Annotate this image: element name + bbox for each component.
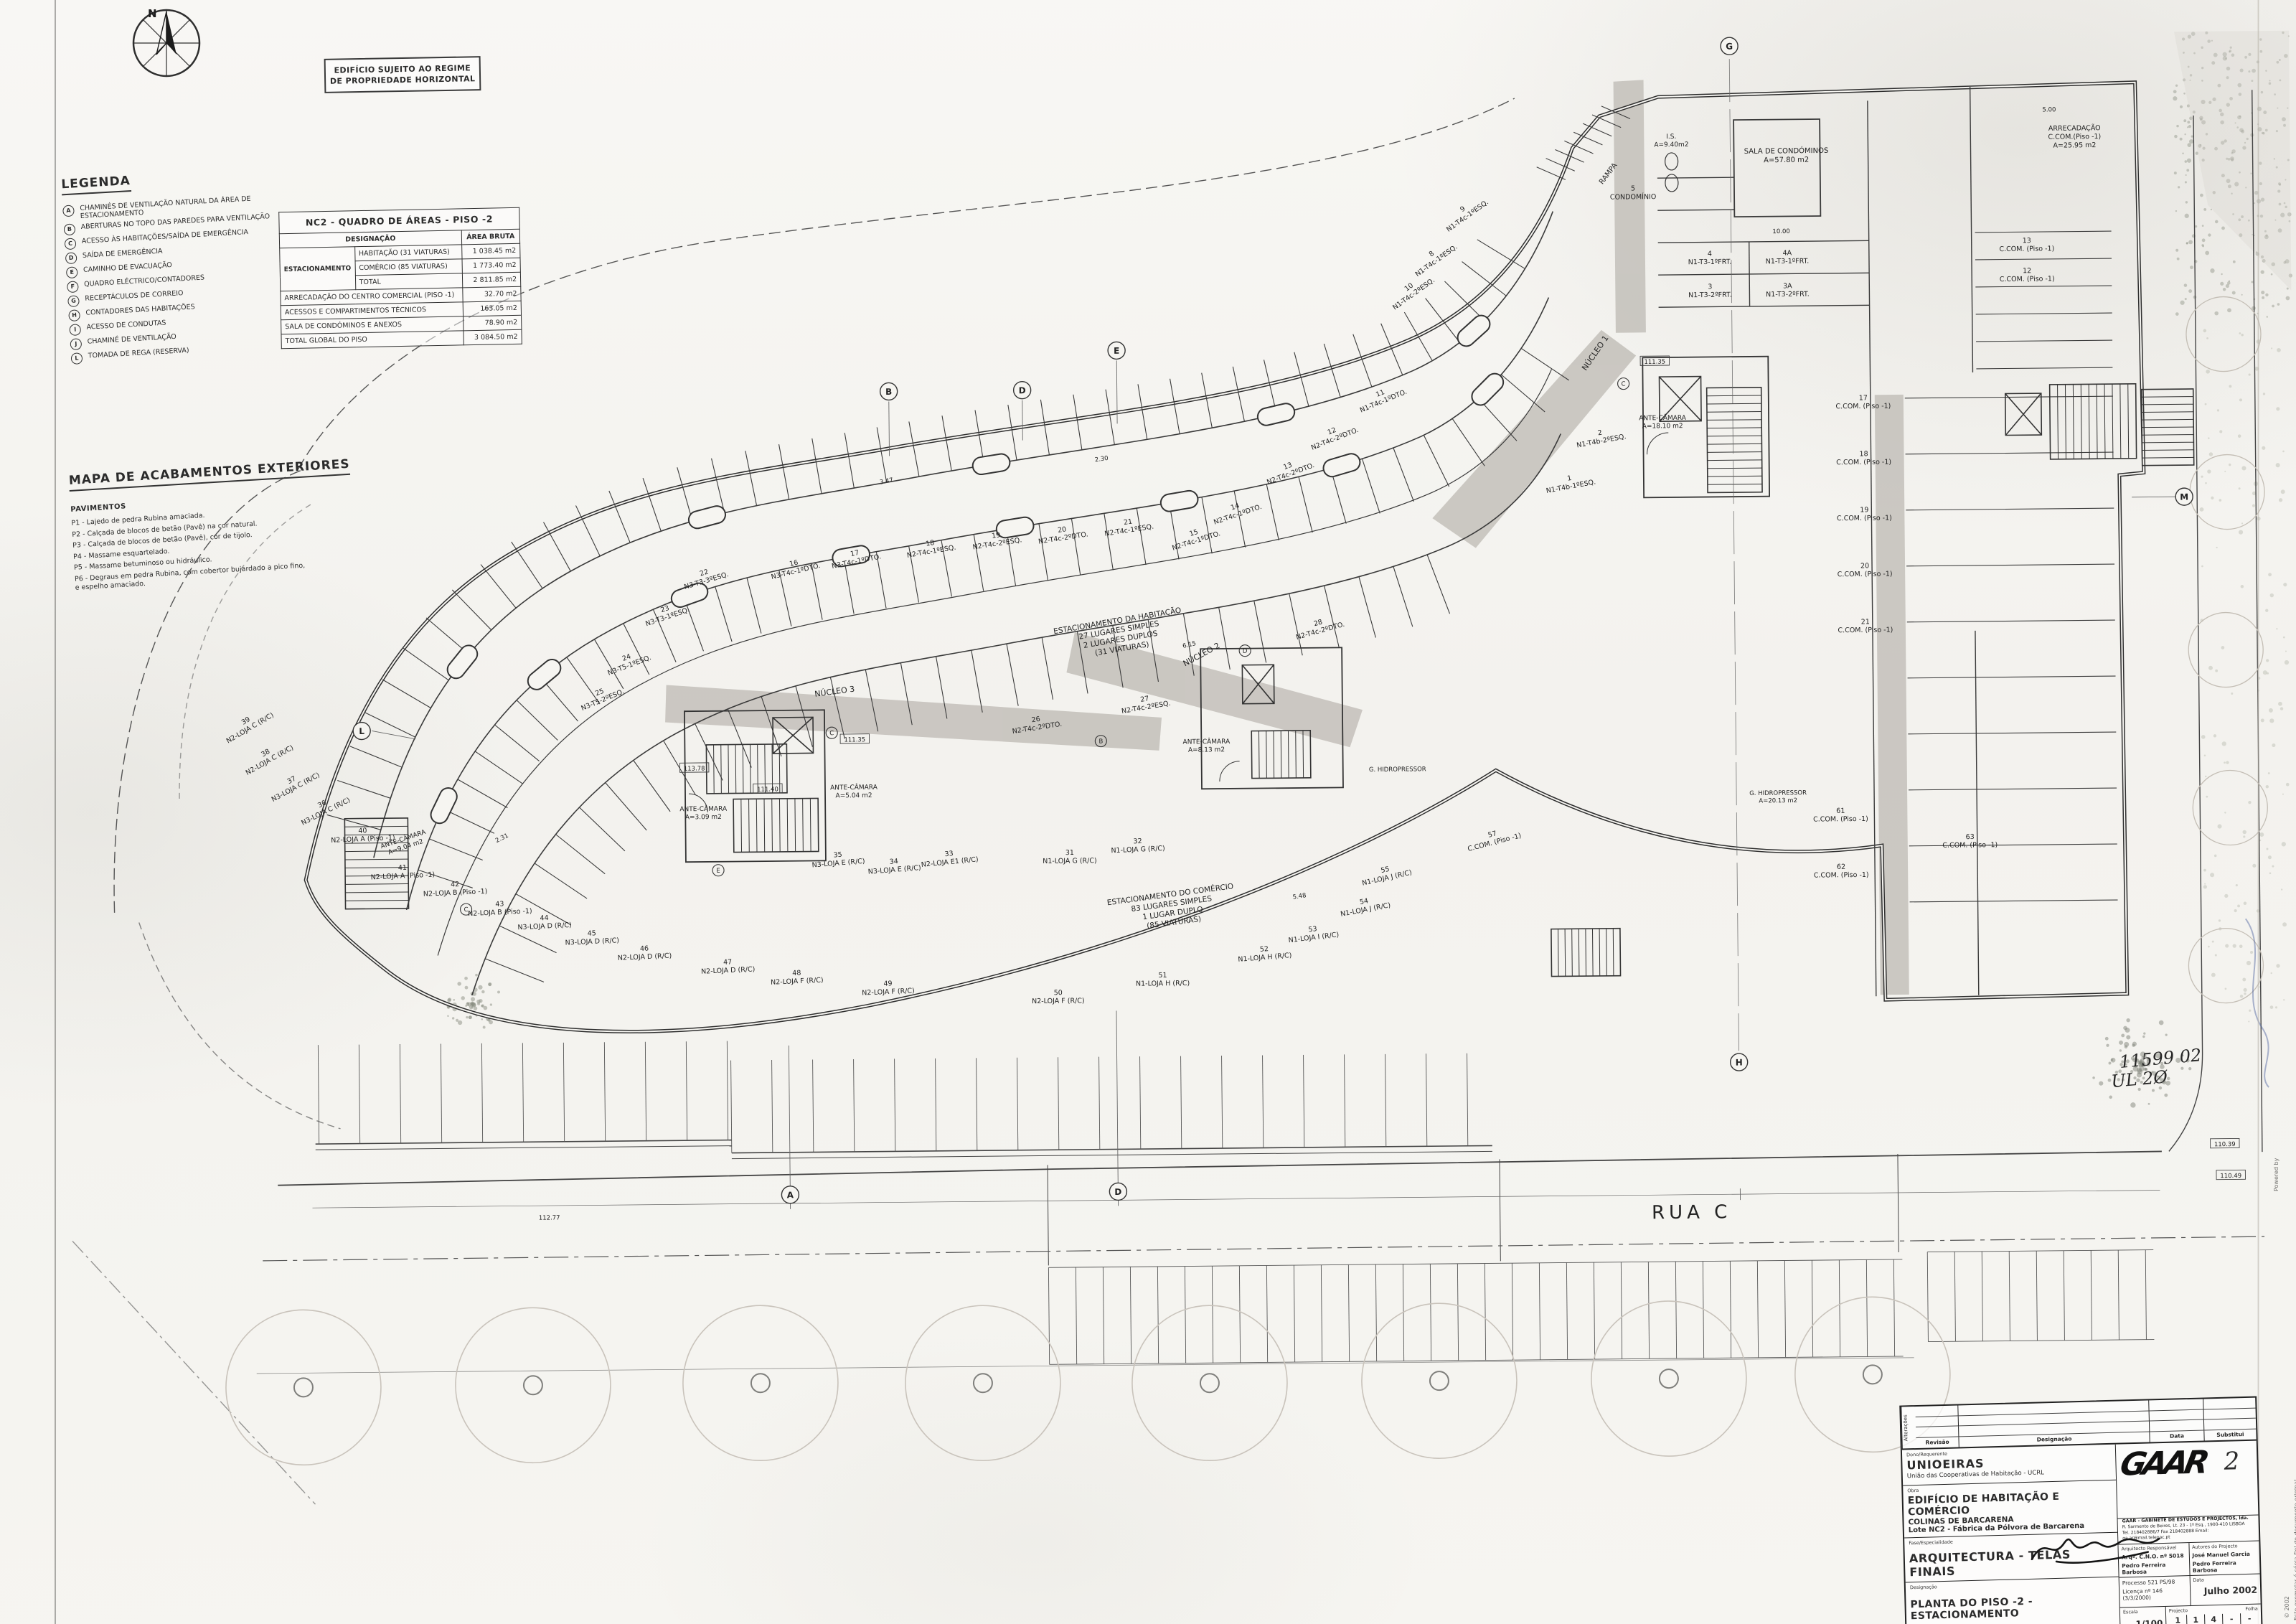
processo-line1: Processo 521 PS/98 [2122, 1578, 2187, 1586]
legend-key-icon: F [67, 281, 79, 293]
designacao-cell: Designação PLANTA DO PISO -2 - ESTACIONA… [1906, 1577, 2119, 1624]
projecto-label: Projecto [2169, 1607, 2188, 1614]
autores-line2: Pedro Ferreira Barbosa [2193, 1559, 2257, 1574]
stall-label: 40N2-LOJA A (Piso -1) [330, 826, 395, 845]
stall-label: 39N2-LOJA C (R/C) [221, 704, 276, 745]
areas-table-cell: 1 038.45 m2 [461, 243, 520, 259]
stall-label: 14N2-T4c-1ºDTO. [1210, 495, 1263, 527]
sheet-crease [2257, 0, 2259, 1624]
dimension-label: 111.35 [844, 736, 865, 743]
grid-mark-G: G [1726, 42, 1733, 52]
grid-mark-B: B [885, 387, 892, 397]
regime-note-box: EDIFÍCIO SUJEITO AO REGIME DE PROPRIEDAD… [324, 56, 481, 93]
drawing-sheet: SALA DE CONDÓMINOSA=57.80 m25CONDOMÍNIOA… [0, 0, 2296, 1624]
legend-key-icon: H [68, 309, 80, 321]
plan-annotation: I.S.A=9.40m2 [1654, 133, 1688, 149]
legend-key-icon: D [65, 252, 77, 264]
legend-key-icon: L [71, 352, 83, 365]
stall-label: 52N1-LOJA H (R/C) [1237, 943, 1292, 963]
data-cell: Data Julho 2002 [2190, 1574, 2261, 1607]
revision-side-label: Alterações [1901, 1407, 1916, 1449]
stall-label: 9N1-T4c-1ºESQ. [1440, 192, 1490, 234]
legend-item-label: CAMINHO DE EVACUAÇÃO [83, 261, 172, 274]
legend-item-label: RECEPTÁCULOS DE CORREIO [85, 289, 184, 303]
dimension-label: 3.47 [879, 477, 893, 486]
stall-label: 46N2-LOJA D (R/C) [617, 944, 672, 962]
title-block: Alterações Revisão Designação Data Subst… [1899, 1397, 2263, 1624]
grid-mark-H: H [1736, 1058, 1743, 1068]
path-mark-C: C [1622, 381, 1626, 388]
plan-annotation: ANTE-CÂMARAA=18.10 m2 [1639, 413, 1687, 431]
compass-north-label: N [148, 7, 157, 20]
plan-annotation: ANTE-CÂMARAA=8.13 m2 [1182, 737, 1231, 754]
stall-label: 4AN1-T3-1ºFRT. [1766, 249, 1810, 266]
grid-mark-D: D [1114, 1187, 1121, 1197]
stall-label: 3AN1-T3-2ºFRT. [1766, 282, 1810, 299]
dimension-label: 112.77 [539, 1214, 560, 1221]
legend-items: ACHAMINÉS DE VENTILAÇÃO NATURAL DA ÁREA … [62, 192, 308, 365]
corridor-bands [659, 78, 1909, 1007]
plan-annotation: ESTACIONAMENTO DO COMÉRCIO83 LUGARES SIM… [1106, 881, 1238, 935]
sheet-fold-line [55, 0, 56, 1624]
revision-col-substitui: Substitui [2204, 1429, 2256, 1440]
autores-label: Autores do Projecto [2192, 1543, 2257, 1550]
stall-label: 2N1-T4b-2ºESQ. [1574, 425, 1627, 450]
dimension-label: 2.30 [1094, 455, 1109, 464]
north-arrow: N [123, 1, 210, 88]
data-value: Julho 2002 [2193, 1585, 2257, 1597]
legend-key-icon: I [69, 324, 81, 336]
stall-label: 43N2-LOJA B (Piso -1) [467, 899, 532, 918]
column-capsules [423, 311, 1511, 826]
stall-label: 33N2-LOJA E1 (R/C) [920, 848, 979, 869]
copy-note-stamp: Este exemplar é cópia fiel do documento … [2293, 1480, 2296, 1620]
wing-walls [1657, 87, 1979, 998]
grid-mark-L: L [359, 726, 364, 736]
stall-label: 45N3-LOJA D (R/C) [565, 929, 619, 947]
autores-line1: José Manuel Garcia [2192, 1551, 2257, 1559]
logo-cell: GAAR 2 [2116, 1441, 2259, 1519]
stall-label: 37N3-LOJA C (R/C) [266, 764, 321, 804]
stall-label: 54N1-LOJA J (R/C) [1338, 893, 1391, 919]
stall-label: 53N1-LOJA I (R/C) [1287, 923, 1340, 944]
stall-label: 61C.COM. (Piso -1) [1813, 807, 1868, 823]
projecto-folha-cells: 114-- [2169, 1613, 2258, 1624]
fase-value: ARQUITECTURA - TELAS FINAIS [1909, 1546, 2114, 1579]
escala-cell: Escala 1/100 [2120, 1607, 2167, 1624]
stair-cores [339, 148, 2199, 988]
regime-note-line2: DE PROPRIEDADE HORIZONTAL [329, 73, 476, 87]
plan-annotation: G. HIDROPRESSOR [1369, 766, 1426, 774]
fase-cell: Fase/Especialidade ARQUITECTURA - TELAS … [1904, 1533, 2119, 1583]
road-lines [245, 90, 2264, 1374]
dimension-label: 111.40 [757, 786, 778, 793]
path-mark-B: B [1098, 738, 1103, 746]
stall-label: 44N3-LOJA D (R/C) [517, 913, 572, 931]
stall-label: 1N1-T4b-1ºESQ. [1544, 470, 1596, 495]
resp-line2: Pedro Ferreira Barbosa [2122, 1561, 2186, 1575]
wing-stall-lines [1904, 231, 2118, 902]
stall-label: 12N2-T4c-2ºDTO. [1307, 418, 1360, 452]
path-mark-C: C [829, 730, 834, 737]
legend-key-icon: J [70, 338, 82, 350]
areas-table-cell: 163.05 m2 [463, 301, 522, 316]
processo-line2: Licença nº 146 (3/3/2000) [2122, 1587, 2187, 1601]
stall-label: 42N2-LOJA B (Piso -1) [423, 879, 487, 898]
revision-col-revisao: Revisão [1916, 1437, 1959, 1448]
stall-label: 55N1-LOJA J (R/C) [1360, 860, 1413, 887]
stall-label: 10N1-T4c-2ºESQ. [1386, 270, 1436, 312]
dimension-label: 110.49 [2220, 1173, 2241, 1180]
stall-label: 50N2-LOJA F (R/C) [1032, 989, 1085, 1005]
stall-label: 57C.COM. (Piso -1) [1464, 824, 1522, 853]
gaar-logo: GAAR [2117, 1446, 2208, 1481]
legend-item-label: SAÍDA DE EMERGÊNCIA [83, 248, 163, 260]
stall-label: 38N2-LOJA C (R/C) [240, 736, 295, 776]
legend-key-icon: A [62, 205, 75, 217]
finishes-block: MAPA DE ACABAMENTOS EXTERIORES PAVIMENTO… [68, 456, 362, 595]
areas-table-cell: TOTAL GLOBAL DO PISO [281, 331, 464, 349]
stall-label: 48N2-LOJA F (R/C) [770, 968, 823, 987]
stall-label: 25N3-T5-2ºESQ. [577, 680, 626, 713]
legend-key-icon: B [63, 223, 75, 235]
folha-label: Folha [2245, 1606, 2258, 1612]
stall-label: 8N1-T4c-1ºESQ. [1409, 237, 1459, 279]
plan-annotation: RUA C [1652, 1201, 1732, 1224]
path-mark-C: C [464, 906, 469, 914]
responsible-architect-cell: Arquitecto Responsável Arqº. C.N.O. nº 5… [2118, 1543, 2190, 1578]
grid-mark-A: A [787, 1190, 794, 1200]
dimension-label: 110.39 [2214, 1141, 2236, 1148]
stall-label: 31N1-LOJA G (R/C) [1043, 849, 1097, 865]
street-parking-combs [318, 1028, 2154, 1372]
tree-circles [216, 296, 2274, 1470]
stall-label: 12C.COM. (Piso -1) [2000, 267, 2055, 283]
stall-label: 35N3-LOJA E (R/C) [811, 849, 865, 869]
stall-label: 34N3-LOJA E (R/C) [867, 855, 921, 876]
obra-cell: Obra EDIFÍCIO DE HABITAÇÃO E COMÉRCIO CO… [1903, 1480, 2117, 1539]
areas-table-cell: 1 773.40 m2 [462, 258, 521, 273]
stall-label: 11N1-T4c-1ºDTO. [1355, 380, 1408, 415]
stall-label: 51N1-LOJA H (R/C) [1136, 971, 1190, 987]
legend-key-icon: C [65, 238, 77, 250]
stall-label: 32N1-LOJA G (R/C) [1111, 836, 1165, 855]
stall-label: 41N2-LOJA A (Piso -1) [370, 863, 435, 881]
dimension-label: 2.31 [494, 832, 509, 845]
client-cell: Dono/Requerente UNIOEIRAS União das Coop… [1902, 1445, 2116, 1486]
powered-by-stamp: Powered by [2273, 1158, 2279, 1191]
areas-table-cell: ÁREA BRUTA [461, 229, 520, 245]
dimension-label: 6.15 [1182, 640, 1197, 650]
projecto-cell: Projecto Folha 114-- [2166, 1604, 2262, 1624]
stall-label: 47N2-LOJA D (R/C) [700, 957, 755, 976]
dimension-label: 10.00 [1772, 228, 1789, 235]
firm-info: GAAR - GABINETE DE ESTUDOS E PROJECTOS, … [2117, 1516, 2259, 1544]
handwritten-annotation: 11599 02 UL 2Ø [2119, 1046, 2204, 1090]
legend-item-label: ACESSO DE CONDUTAS [86, 319, 166, 332]
stall-label: 21N2-T4c-1ºESQ. [1103, 515, 1154, 538]
resp-line1: Arqº. C.N.O. nº 5018 [2122, 1552, 2186, 1560]
legend-key-icon: E [66, 266, 78, 278]
processo-cell: Processo 521 PS/98 Licença nº 146 (3/3/2… [2119, 1576, 2191, 1608]
grid-mark-M: M [2180, 492, 2188, 502]
stall-label: 62C.COM. (Piso -1) [1814, 863, 1869, 879]
escala-label: Escala [2123, 1608, 2163, 1615]
stall-label: 24N3-T5-1ºESQ. [603, 646, 652, 677]
stall-label: 13N2-T4c-2ºDTO. [1263, 454, 1315, 487]
plan-annotation: ANTE-CÂMARAA=3.09 m2 [679, 804, 728, 822]
grid-mark-E: E [1114, 346, 1119, 356]
plan-annotation: ARRECADAÇÃOC.COM.(Piso -1)A=25.95 m2 [2048, 124, 2101, 149]
stall-label: 13C.COM. (Piso -1) [1999, 237, 2054, 253]
stall-label: 15N2-T4c-1ºDTO. [1169, 522, 1221, 553]
legend-key-icon: G [67, 295, 80, 307]
areas-table-cell: 78.90 m2 [463, 315, 522, 331]
authors-cell: Autores do Projecto José Manuel Garcia P… [2189, 1541, 2260, 1577]
plan-annotation: SALA DE CONDÓMINOSA=57.80 m2 [1744, 146, 1829, 165]
legend-item-label: TOMADA DE REGA (RESERVA) [88, 347, 189, 360]
areas-table-block: NC2 - QUADRO DE ÁREAS - PISO -2DESIGNAÇÃ… [278, 207, 522, 349]
areas-table-cell: 2 811.85 m2 [462, 272, 521, 288]
legend-title: LEGENDA [61, 174, 131, 195]
copyright-stamp: © 2002 [2284, 1596, 2290, 1618]
dimension-labels: 111.35111.40113.78111.35110.39110.49112.… [487, 105, 2245, 1222]
data-label: Data [2193, 1576, 2257, 1583]
dimension-label: 5.00 [2042, 106, 2056, 113]
dimension-label: 113.78 [684, 765, 705, 772]
dimension-label: 5.48 [1292, 892, 1307, 901]
stall-label: 36N3-LOJA C (R/C) [296, 789, 352, 827]
plan-annotation: G. HIDROPRESSORA=20.13 m2 [1749, 789, 1807, 804]
designacao-value: PLANTA DO PISO -2 - ESTACIONAMENTO [1910, 1594, 2115, 1622]
path-mark-E: E [716, 868, 720, 875]
stall-label: 20N2-T4c-2ºDTO. [1037, 522, 1089, 546]
stall-label: 4N1-T3-1ºFRT. [1688, 250, 1732, 266]
revision-col-data: Data [2150, 1430, 2204, 1442]
legend-item-label: CHAMINÉ DE VENTILAÇÃO [87, 333, 177, 346]
dimension-label: 111.35 [1644, 359, 1665, 366]
grid-mark-D: D [1019, 385, 1026, 395]
stall-label: 16N3-T4c-1ºDTO. [768, 554, 821, 581]
areas-table-cell: ESTACIONAMENTO [280, 247, 356, 291]
corner-shading [2174, 31, 2291, 292]
plan-annotation: ANTE-CÂMARAA=5.04 m2 [830, 783, 878, 800]
path-mark-D: D [1243, 648, 1248, 655]
areas-table-cell: 3 084.50 m2 [464, 329, 522, 345]
legend-block: LEGENDA ACHAMINÉS DE VENTILAÇÃO NATURAL … [61, 164, 308, 367]
designacao-label: Designação [1910, 1580, 2114, 1590]
sheet-number-handwritten: 2 [2224, 1447, 2240, 1476]
escala-value: 1/100 [2123, 1618, 2163, 1624]
road-centerline [263, 1236, 2264, 1261]
areas-table: NC2 - QUADRO DE ÁREAS - PISO -2DESIGNAÇÃ… [278, 207, 522, 349]
stall-label: 3N1-T3-2ºFRT. [1688, 283, 1732, 299]
resp-label: Arquitecto Responsável [2121, 1544, 2186, 1552]
stall-label: 28N2-T4c-2ºDTO. [1293, 613, 1345, 642]
plan-annotation: ANTE-CÂMARAA=9.04 m2 [380, 827, 430, 858]
areas-table-cell: 32.70 m2 [462, 286, 521, 302]
stall-label: 49N2-LOJA F (R/C) [862, 979, 915, 998]
finishes-items: P1 - Lajedo de pedra Rubina amaciada.P2 … [71, 502, 362, 593]
firm-line3: Tel. 218402886/7 Fax 218402888 Email: ga… [2122, 1527, 2248, 1541]
stall-label: 63C.COM. (Piso -1) [1942, 833, 1998, 850]
